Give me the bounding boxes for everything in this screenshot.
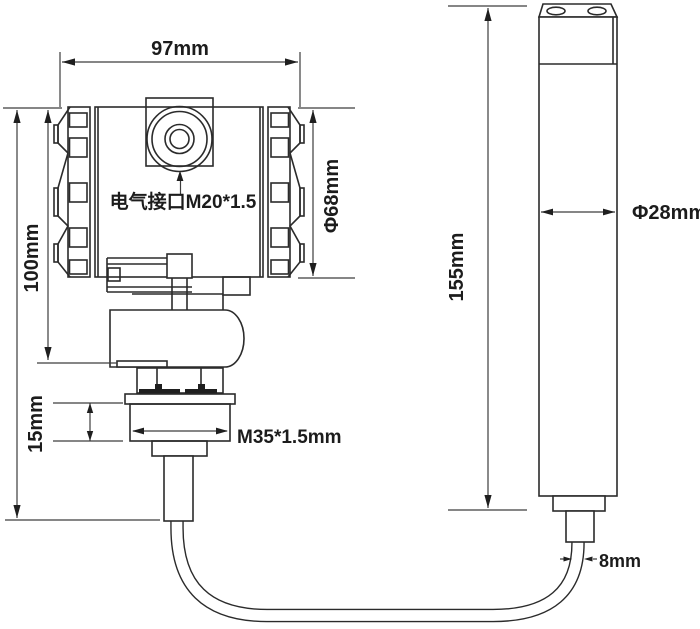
gasket-pin-right [198,384,205,389]
label-head-width: 97mm [151,38,209,60]
label-head-diameter: Φ68mm [321,159,343,233]
label-gland-height: 15mm [25,395,47,453]
electrical-boss [146,98,213,166]
gland-collar [152,441,207,456]
dimension-drawing-canvas: 97mm 100mm Φ68mm 电气接口M20*1.5 15mm M35*1.… [0,0,700,629]
process-connection [110,310,244,456]
probe-body [539,17,617,496]
label-thread-spec: M35*1.5mm [237,427,342,448]
probe-step [553,496,605,511]
clamp-pins [157,368,201,389]
transmitter-dimension-drawing: 97mm 100mm Φ68mm 电气接口M20*1.5 15mm M35*1.… [0,0,700,629]
port-circle-inner [170,130,189,149]
port-circle-2 [152,112,207,167]
connection-capsule [110,310,244,367]
capsule-step [117,361,167,367]
label-probe-length: 155mm [446,233,468,302]
flange-plate [125,394,235,404]
gland-tube [164,456,193,521]
thread-nut [130,404,230,441]
connection-cable [177,510,578,616]
head-lower-bracket [107,254,250,311]
port-circle-outer [147,107,212,172]
head-left-cap [54,107,90,277]
label-head-height: 100mm [21,224,43,293]
gasket-pin-left [155,384,162,389]
label-electrical-port: 电气接口M20*1.5 [110,190,257,213]
label-cable-diameter: 8mm [599,551,641,571]
head-right-cap [268,107,304,277]
label-probe-diameter: Φ28mm [632,202,700,224]
probe [539,4,617,542]
dimension-arrowheads [13,8,615,562]
probe-neck [566,511,594,542]
